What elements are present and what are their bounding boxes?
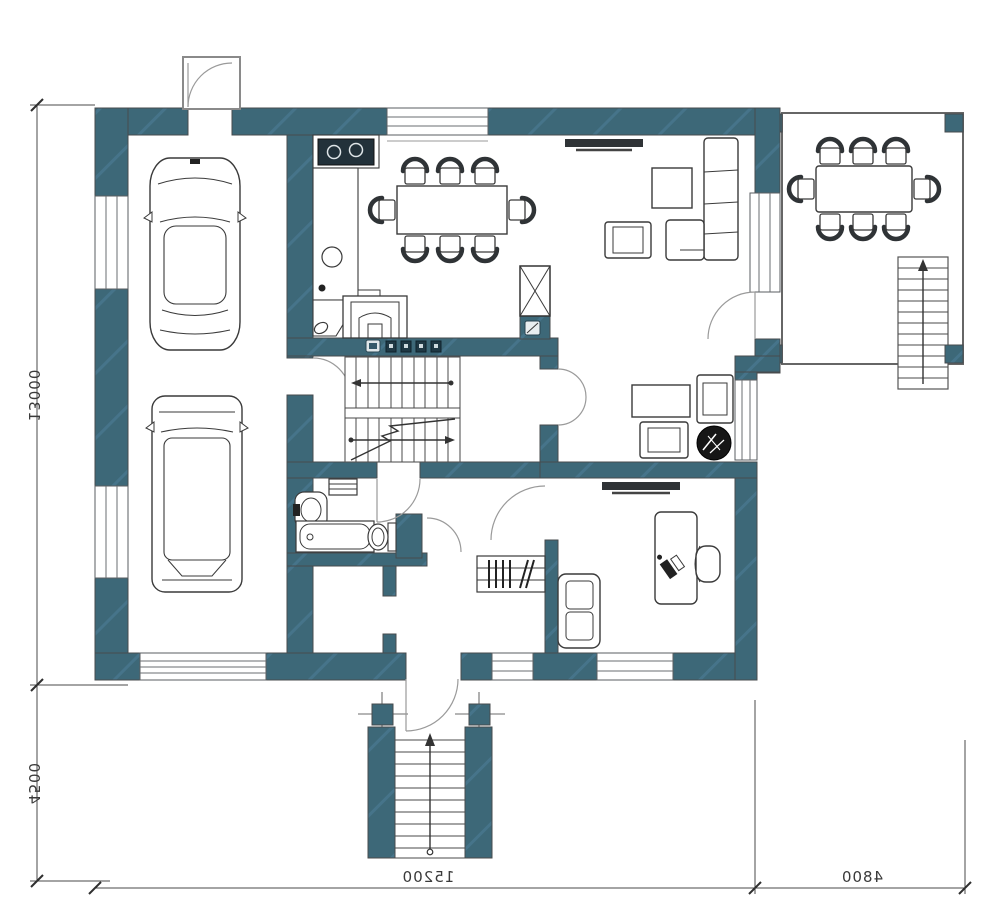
wall-hall-right: [540, 356, 558, 369]
wood-stove: [343, 290, 407, 338]
potted-plant: [697, 426, 731, 460]
wall-right-living: [755, 108, 780, 193]
sitting-room: [632, 375, 733, 460]
terrace-slider: [750, 193, 780, 292]
wall-right-lower: [735, 372, 757, 380]
terrace-stair: [898, 257, 948, 389]
dim-label-left-bottom: 4500: [25, 762, 43, 804]
armchair: [697, 375, 733, 423]
car-sedan: [144, 158, 246, 350]
wall-left: [95, 289, 128, 486]
garage-window-upper: [95, 196, 128, 289]
tv: [602, 482, 680, 490]
tv: [565, 139, 643, 147]
main-stair: [345, 357, 460, 462]
counter-dot: [319, 285, 326, 292]
terrace-post: [945, 114, 963, 132]
vent-shaft: [520, 266, 550, 316]
wall-right-step: [735, 356, 780, 372]
wall-hall-right: [540, 425, 558, 462]
wall-bottom: [461, 653, 492, 680]
armchair: [605, 222, 651, 258]
entry-stair: [368, 727, 492, 858]
terrace-post: [945, 345, 963, 363]
office-window: [597, 653, 673, 680]
porch-column: [372, 704, 393, 725]
dining-table: [397, 186, 507, 234]
sofa: [558, 574, 600, 648]
wall-toilet-duct: [396, 514, 422, 558]
car-suv: [146, 396, 248, 592]
corridor: [477, 556, 545, 592]
armchair: [640, 422, 688, 458]
garage-side-door: [183, 57, 240, 109]
porch-column: [469, 704, 490, 725]
coffee-table: [652, 168, 692, 208]
wall-bottom: [95, 653, 140, 680]
wall-bath-top: [287, 462, 377, 478]
toilet: [368, 523, 396, 551]
wall-right-lower: [735, 462, 757, 680]
wall-bottom: [266, 653, 406, 680]
entry-side-window: [492, 653, 533, 680]
table: [632, 385, 690, 417]
wall-top: [232, 108, 387, 135]
dim-label-bottom-main: 15200: [402, 868, 455, 886]
outdoor-table: [816, 166, 912, 212]
terrace: [764, 113, 963, 389]
wall-vestibule: [383, 634, 396, 653]
counter-left: [313, 168, 358, 300]
dim-label-left-top: 13000: [25, 369, 43, 422]
radiator: [329, 479, 357, 495]
garage-window-lower: [95, 486, 128, 578]
wall-bath-top: [420, 462, 540, 478]
wall-top: [488, 108, 755, 135]
garage-vehicle-door: [140, 653, 266, 680]
wardrobe-hangers: [477, 556, 545, 592]
bathtub: [296, 521, 374, 552]
office-chair: [695, 546, 720, 582]
wall-vestibule: [383, 566, 396, 596]
wall-sitting-office: [540, 462, 757, 478]
dim-label-bottom-right: 4800: [841, 868, 883, 886]
wall-left: [95, 108, 128, 196]
floor-plan-canvas: 13000 4500 15200 4800: [0, 0, 1000, 918]
sitting-room-window: [735, 380, 757, 460]
round-sink: [322, 247, 342, 267]
wall-garage-kitchen: [287, 135, 313, 358]
cooktop: [318, 139, 374, 165]
side-porch: [183, 57, 240, 109]
wall-bottom: [533, 653, 597, 680]
wall-office-left: [545, 540, 558, 653]
